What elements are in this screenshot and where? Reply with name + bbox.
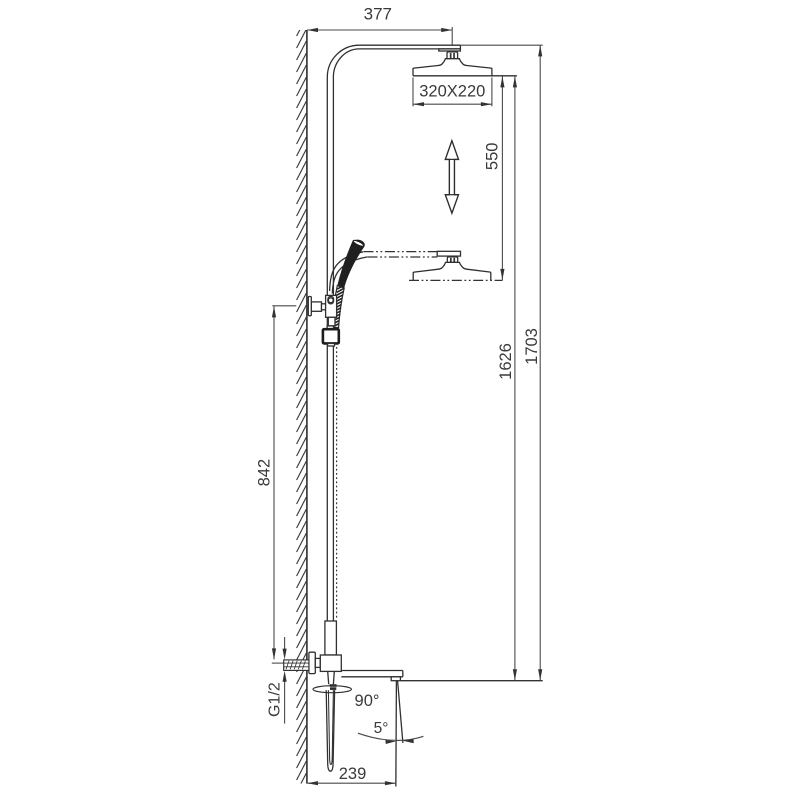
svg-text:842: 842 bbox=[256, 459, 274, 487]
svg-text:1703: 1703 bbox=[523, 328, 541, 365]
svg-text:320X220: 320X220 bbox=[419, 83, 485, 101]
svg-text:239: 239 bbox=[339, 765, 367, 783]
svg-text:377: 377 bbox=[364, 5, 392, 24]
svg-text:G1/2: G1/2 bbox=[266, 682, 283, 717]
svg-text:5°: 5° bbox=[374, 720, 389, 737]
svg-text:90°: 90° bbox=[355, 692, 380, 710]
svg-text:550: 550 bbox=[483, 143, 501, 171]
svg-text:1626: 1626 bbox=[497, 343, 515, 380]
